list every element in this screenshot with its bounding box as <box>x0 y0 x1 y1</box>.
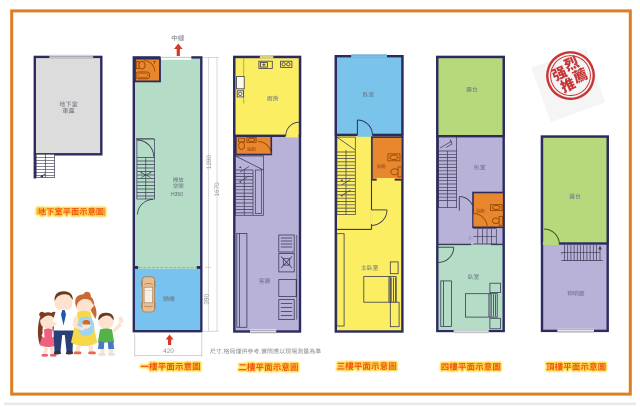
svg-text:1670: 1670 <box>214 182 221 197</box>
svg-text:420: 420 <box>163 348 174 355</box>
svg-text:390: 390 <box>204 294 211 305</box>
svg-text:H350: H350 <box>171 192 183 198</box>
svg-text:1280: 1280 <box>206 154 213 169</box>
